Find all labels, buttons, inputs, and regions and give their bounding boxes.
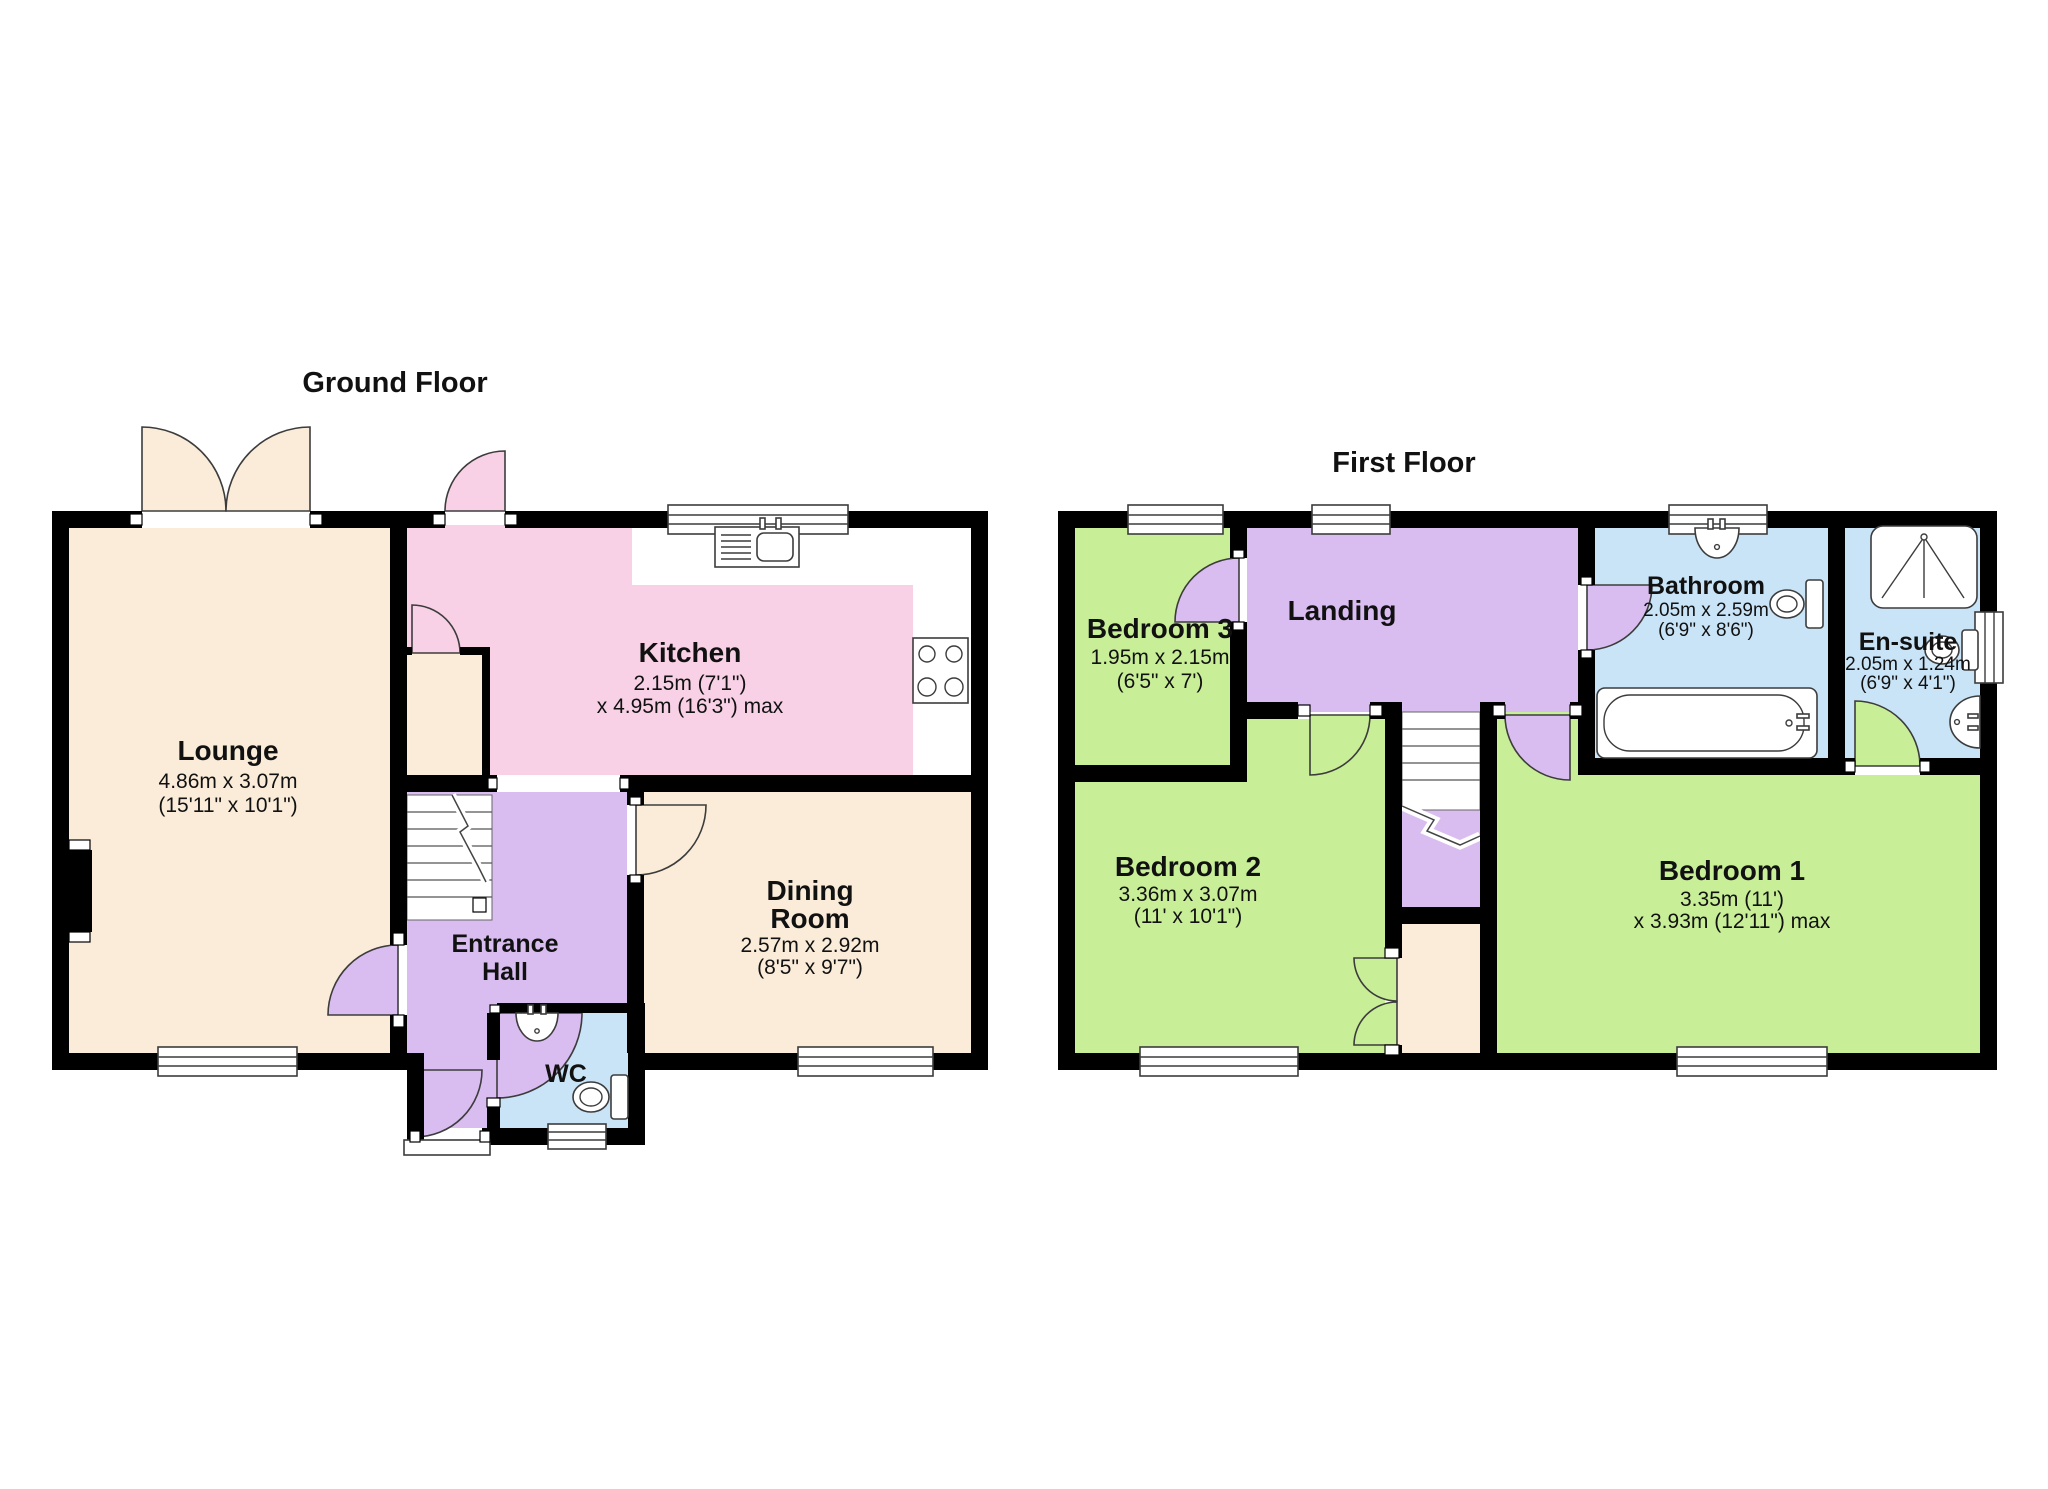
bedroom2-dims-2: (11' x 10'1") <box>1134 905 1242 928</box>
stairs-box <box>1402 712 1480 810</box>
floorplan-svg: Ground Floor Lounge 4.86m x 3.07m (15'11… <box>0 0 2048 1489</box>
room-closet <box>407 647 482 775</box>
dining-label-2: Room <box>770 903 849 934</box>
hall-label-2: Hall <box>482 958 528 986</box>
ensuite-window <box>1975 612 2003 683</box>
bath-fixture <box>1597 688 1817 758</box>
french-door-right <box>226 427 310 511</box>
chimney-notch-top <box>69 840 90 850</box>
floorplan-canvas: Ground Floor Lounge 4.86m x 3.07m (15'11… <box>0 0 2048 1489</box>
bedroom2-dims-1: 3.36m x 3.07m <box>1119 883 1258 906</box>
chimney-breast <box>69 850 92 932</box>
shower-fixture <box>1871 526 1977 608</box>
bedroom1-window <box>1677 1047 1827 1076</box>
ensuite-dims-1: 2.05m x 1.24m <box>1845 654 1971 675</box>
french-door-left <box>142 427 226 511</box>
dining-dims-2: (8'5" x 9'7") <box>757 956 863 979</box>
room-cupboard <box>1397 924 1480 1053</box>
bathroom-label: Bathroom <box>1647 572 1765 600</box>
kitchen-dims-1: 2.15m (7'1") <box>633 672 746 695</box>
wc-label: WC <box>545 1060 587 1088</box>
bedroom3-label: Bedroom 3 <box>1087 613 1233 644</box>
kitchen-label: Kitchen <box>639 637 742 668</box>
bedroom2-window <box>1140 1047 1298 1076</box>
bedroom1-dims-2: x 3.93m (12'11") max <box>1634 910 1831 933</box>
hall-label-1: Entrance <box>452 930 559 958</box>
ensuite-label: En-suite <box>1859 628 1958 656</box>
bathroom-dims-1: 2.05m x 2.59m <box>1643 600 1769 621</box>
bedroom1-label: Bedroom 1 <box>1659 855 1805 886</box>
lounge-window <box>158 1047 297 1076</box>
landing-label: Landing <box>1288 595 1397 626</box>
dining-window <box>798 1047 933 1076</box>
ensuite-dims-2: (6'9" x 4'1") <box>1860 673 1956 694</box>
lounge-label: Lounge <box>177 735 278 766</box>
first-floor-title: First Floor <box>1332 447 1475 479</box>
kitchen-dims-2: x 4.95m (16'3") max <box>597 695 784 718</box>
hob-fixture <box>913 638 968 703</box>
bedroom1-dims-1: 3.35m (11') <box>1680 888 1784 911</box>
stair-newel <box>473 898 486 912</box>
lounge-dims-2: (15'11" x 10'1") <box>158 794 297 817</box>
first-floor-plan: First Floor Bedroom 3 1.95m x 2.15m (6'5… <box>1058 447 2003 1076</box>
bedroom3-dims-2: (6'5" x 7') <box>1117 670 1204 693</box>
lounge-dims-1: 4.86m x 3.07m <box>159 770 298 793</box>
ground-floor-title: Ground Floor <box>302 367 487 399</box>
ground-floor-plan: Ground Floor Lounge 4.86m x 3.07m (15'11… <box>52 367 988 1155</box>
bedroom3-dims-1: 1.95m x 2.15m <box>1091 646 1230 669</box>
bedroom2-label: Bedroom 2 <box>1115 851 1261 882</box>
wc-window <box>548 1124 606 1149</box>
dining-label-1: Dining <box>766 875 853 906</box>
chimney-notch-bottom <box>69 932 90 942</box>
landing-window <box>1312 505 1390 534</box>
kitchen-back-door <box>445 451 505 511</box>
dining-dims-1: 2.57m x 2.92m <box>741 934 880 957</box>
bedroom3-window <box>1128 505 1223 534</box>
bathroom-dims-2: (6'9" x 8'6") <box>1658 620 1754 641</box>
ground-stairs <box>407 795 492 920</box>
